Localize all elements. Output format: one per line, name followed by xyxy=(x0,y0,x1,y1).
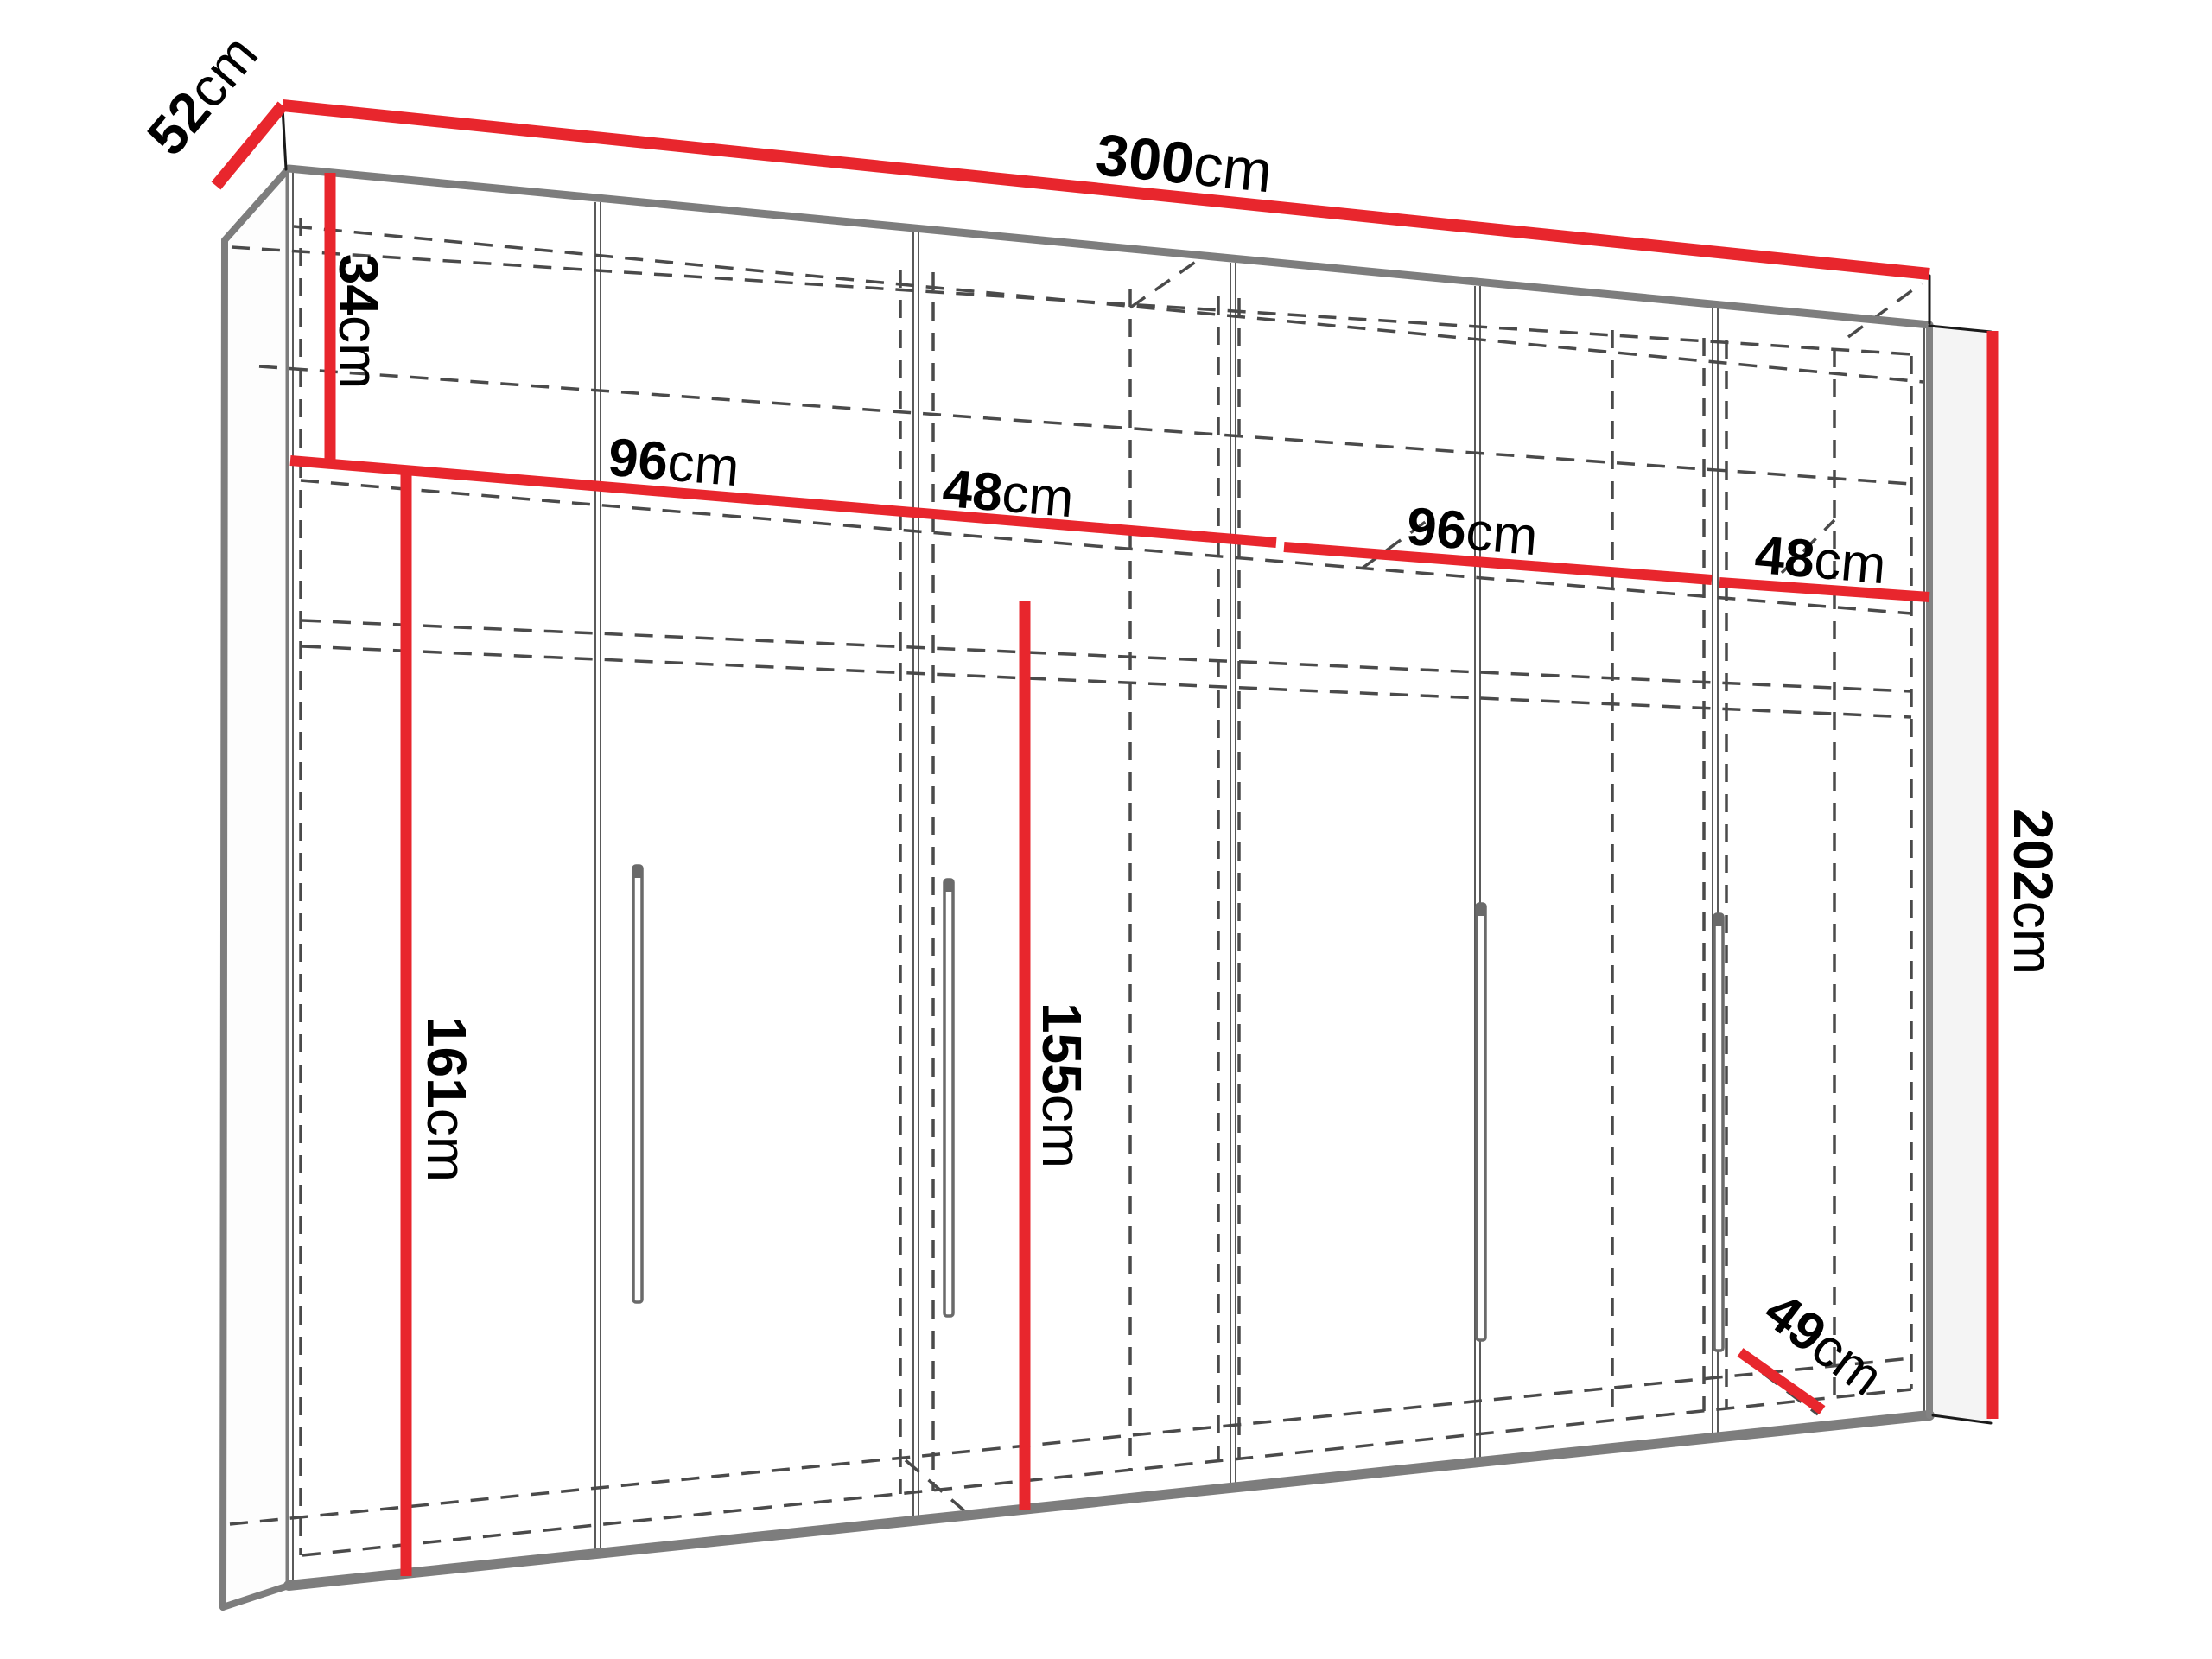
handle-4 xyxy=(1714,914,1723,1351)
handle-1 xyxy=(633,866,642,1302)
handle-3 xyxy=(1477,904,1485,1340)
left-side-face xyxy=(223,168,289,1607)
front-face xyxy=(289,168,1929,1586)
diagram-canvas: 300cm 52cm 34cm 96cm 48cm 96cm 48cm 161c… xyxy=(0,0,2212,1659)
label-section-3: 96cm xyxy=(1404,497,1540,567)
handle-3-cap xyxy=(1477,904,1485,916)
dim-tick-top-left xyxy=(283,107,286,169)
edge-back-left xyxy=(223,240,225,1607)
label-section-2: 48cm xyxy=(940,459,1076,529)
handle-1-cap xyxy=(633,866,642,878)
label-section-1: 96cm xyxy=(606,428,741,498)
label-top-shelf-height: 34cm xyxy=(327,254,390,390)
dim-line-depth-52 xyxy=(216,105,283,186)
label-right-hanging-height: 155cm xyxy=(1031,1002,1093,1168)
label-left-hanging-height: 161cm xyxy=(416,1016,478,1182)
wardrobe-dimension-diagram: 300cm 52cm 34cm 96cm 48cm 96cm 48cm 161c… xyxy=(0,0,2212,1659)
handle-2 xyxy=(944,880,953,1316)
handle-4-cap xyxy=(1714,914,1723,926)
label-overall-height: 202cm xyxy=(2002,809,2064,975)
label-section-4: 48cm xyxy=(1752,525,1888,595)
handle-2-cap xyxy=(944,880,953,892)
right-side-face xyxy=(1929,325,1991,1422)
